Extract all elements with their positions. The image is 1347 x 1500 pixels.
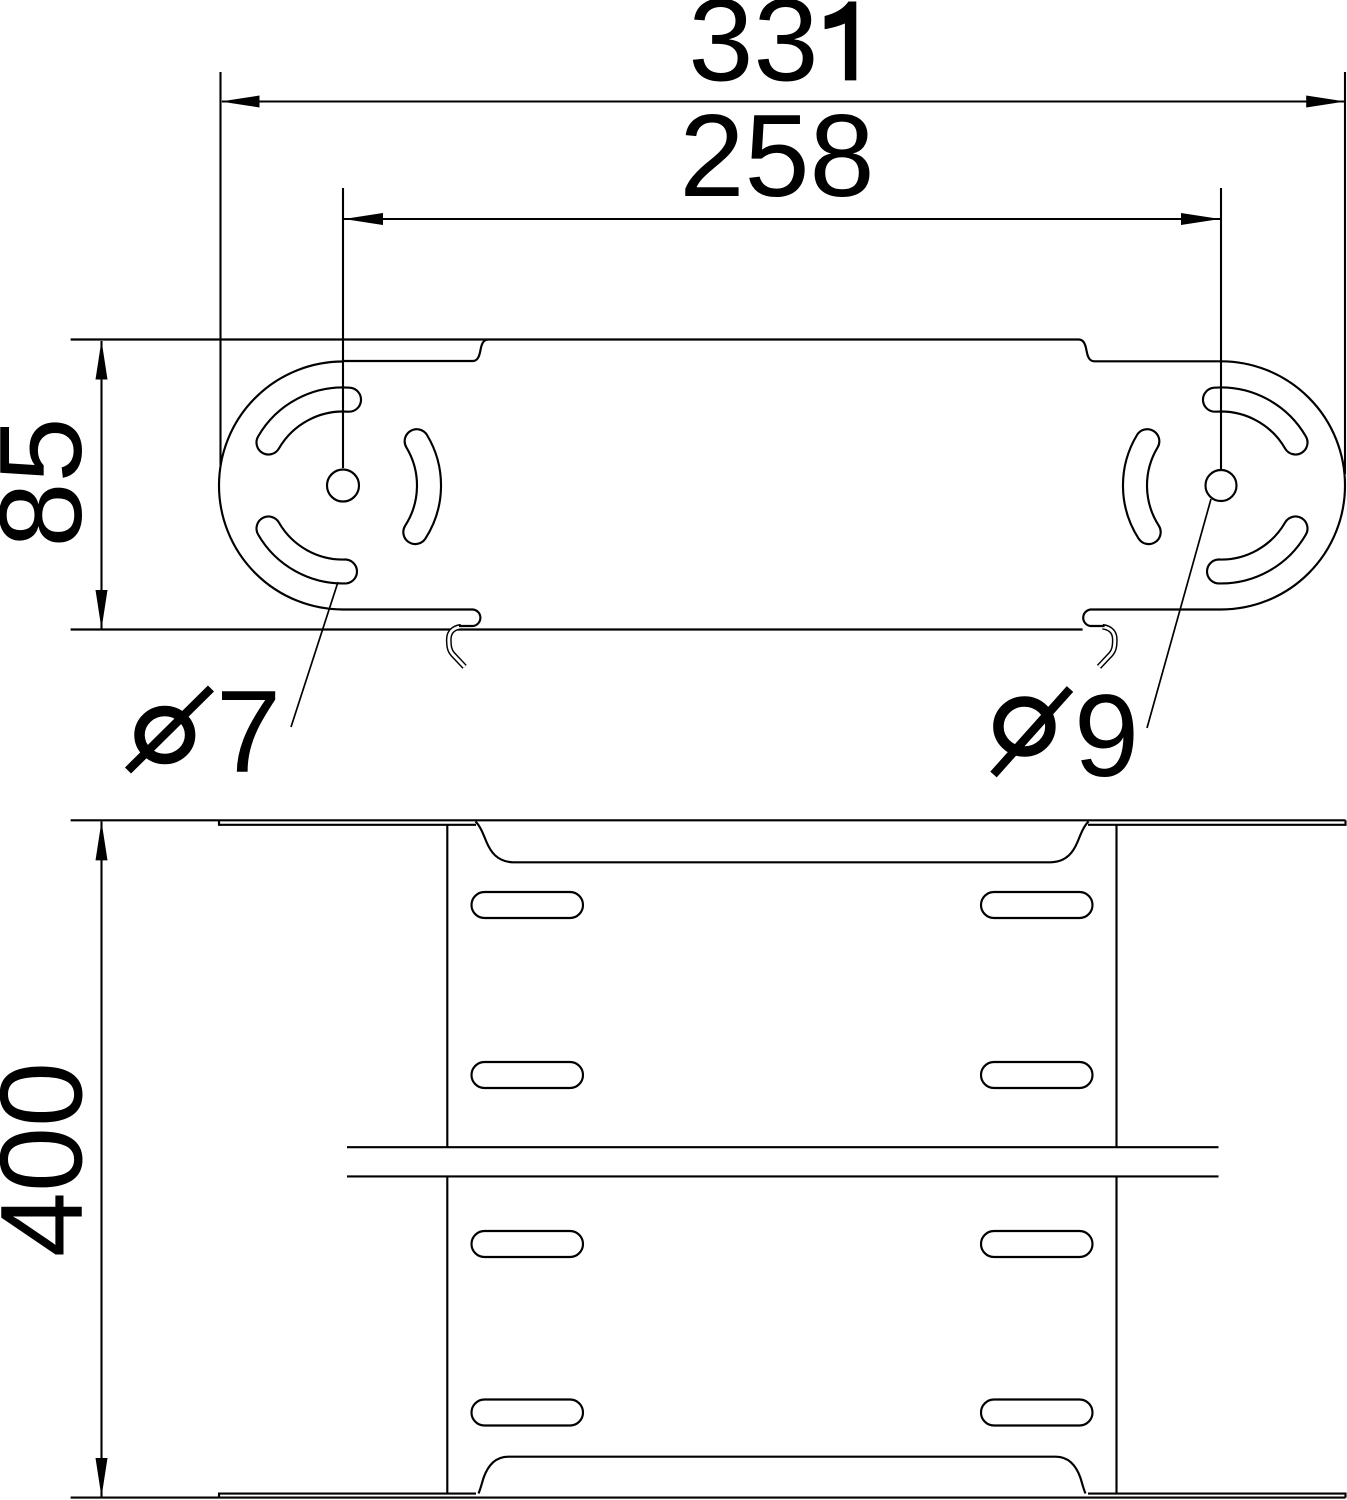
svg-text:400: 400 bbox=[0, 1062, 107, 1257]
svg-text:7: 7 bbox=[216, 666, 281, 797]
svg-text:258: 258 bbox=[679, 90, 874, 221]
svg-text:9: 9 bbox=[1074, 670, 1139, 801]
svg-text:85: 85 bbox=[0, 417, 106, 547]
